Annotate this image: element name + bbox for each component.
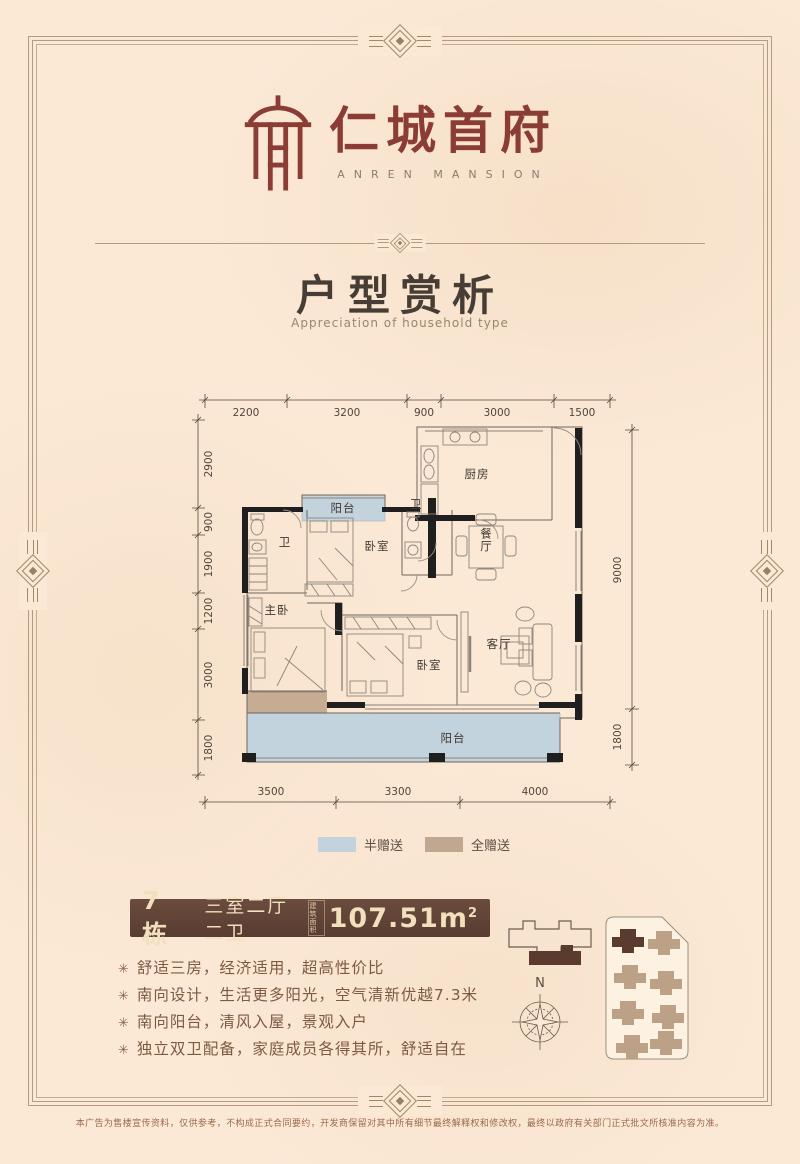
page-subtitle: Appreciation of household type <box>0 316 800 330</box>
legend-half-gift: 半赠送 <box>318 835 403 854</box>
building-number: 7栋 <box>142 886 178 951</box>
area-label: 建筑面积 <box>308 900 325 936</box>
frame-ornament-left <box>19 532 47 610</box>
frame-ornament-bottom <box>358 1086 442 1116</box>
brand-name: 仁城首府 <box>329 103 557 158</box>
frame-ornament-top <box>358 26 442 56</box>
dim-left-2: 900 <box>203 512 215 532</box>
dim-right-2: 1800 <box>612 724 624 751</box>
north-label: N <box>535 976 545 991</box>
brand-name-en: ANREN MANSION <box>337 168 548 181</box>
dim-left-3: 1900 <box>203 551 215 578</box>
dim-top-5: 1500 <box>569 407 596 419</box>
room-label-living: 客厅 <box>487 637 512 651</box>
legend: 半赠送 全赠送 <box>318 835 510 854</box>
page-title: 户型赏析 <box>0 262 800 323</box>
dim-top-1: 2200 <box>233 407 260 419</box>
asterisk-bullet-icon: ✳ <box>118 1043 130 1058</box>
feature-item: ✳南向设计，生活更多阳光，空气清新优越7.3米 <box>118 983 478 1010</box>
compass-rose-icon <box>512 994 568 1050</box>
room-label-master: 主卧 <box>265 603 290 617</box>
full-gift-label: 全赠送 <box>471 835 510 854</box>
room-label-balcony-top: 阳台 <box>331 501 356 515</box>
gate-icon <box>243 92 313 192</box>
asterisk-bullet-icon: ✳ <box>118 989 130 1004</box>
unit-info-bar: 7栋 三室二厅二卫 建筑面积 107.51m2 <box>130 899 490 937</box>
dim-left-4: 1200 <box>203 598 215 625</box>
balcony-bottom-area <box>247 713 560 762</box>
feature-item: ✳舒适三房，经济适用，超高性价比 <box>118 956 478 983</box>
brand-logo: 仁城首府 ANREN MANSION <box>0 92 800 192</box>
disclaimer-text: 本广告为售楼宣传资料，仅供参考，不构成正式合同要约，开发商保留对其中所有细节最终… <box>60 1116 740 1129</box>
half-gift-label: 半赠送 <box>364 835 403 854</box>
room-label-kitchen: 厨房 <box>465 467 490 481</box>
half-gift-swatch <box>318 837 356 852</box>
room-label-bath2: 卫 <box>410 497 423 511</box>
unit-layout: 三室二厅二卫 <box>204 891 307 945</box>
asterisk-bullet-icon: ✳ <box>118 1016 130 1031</box>
floor-plan: 2200 3200 900 3000 1500 2900 900 1900 12… <box>185 388 645 828</box>
compass: N <box>510 974 570 1058</box>
feature-list: ✳舒适三房，经济适用，超高性价比 ✳南向设计，生活更多阳光，空气清新优越7.3米… <box>118 956 478 1064</box>
dim-right-1: 9000 <box>612 557 624 584</box>
dim-left-6: 1800 <box>203 735 215 762</box>
dim-bottom-2: 3300 <box>385 786 412 798</box>
asterisk-bullet-icon: ✳ <box>118 962 130 977</box>
dim-left-5: 3000 <box>203 662 215 689</box>
room-label-dining: 餐厅 <box>479 527 493 553</box>
dim-top-4: 3000 <box>484 407 511 419</box>
room-label-balcony-bottom: 阳台 <box>441 731 466 745</box>
full-gift-swatch <box>425 837 463 852</box>
site-plan <box>598 913 696 1063</box>
feature-item: ✳南向阳台，清风入屋，景观入户 <box>118 1010 478 1037</box>
room-label-bedroom2: 卧室 <box>417 658 442 672</box>
legend-full-gift: 全赠送 <box>425 835 510 854</box>
dim-top-3: 900 <box>414 407 434 419</box>
dim-top-2: 3200 <box>334 407 361 419</box>
gift-areas <box>247 495 560 762</box>
room-label-bath1: 卫 <box>279 535 292 549</box>
room-label-bedroom1: 卧室 <box>365 539 390 553</box>
feature-item: ✳独立双卫配备，家庭成员各得其所，舒适自在 <box>118 1037 478 1064</box>
dim-left-1: 2900 <box>203 451 215 478</box>
area-value: 107.51m2 <box>329 903 478 934</box>
furniture <box>249 429 552 697</box>
frame-ornament-right <box>753 532 781 610</box>
divider-ornament <box>374 234 425 252</box>
dim-bottom-1: 3500 <box>258 786 285 798</box>
dim-bottom-3: 4000 <box>522 786 549 798</box>
full-gift-area <box>247 691 327 713</box>
building-footprint-icon <box>505 915 597 969</box>
